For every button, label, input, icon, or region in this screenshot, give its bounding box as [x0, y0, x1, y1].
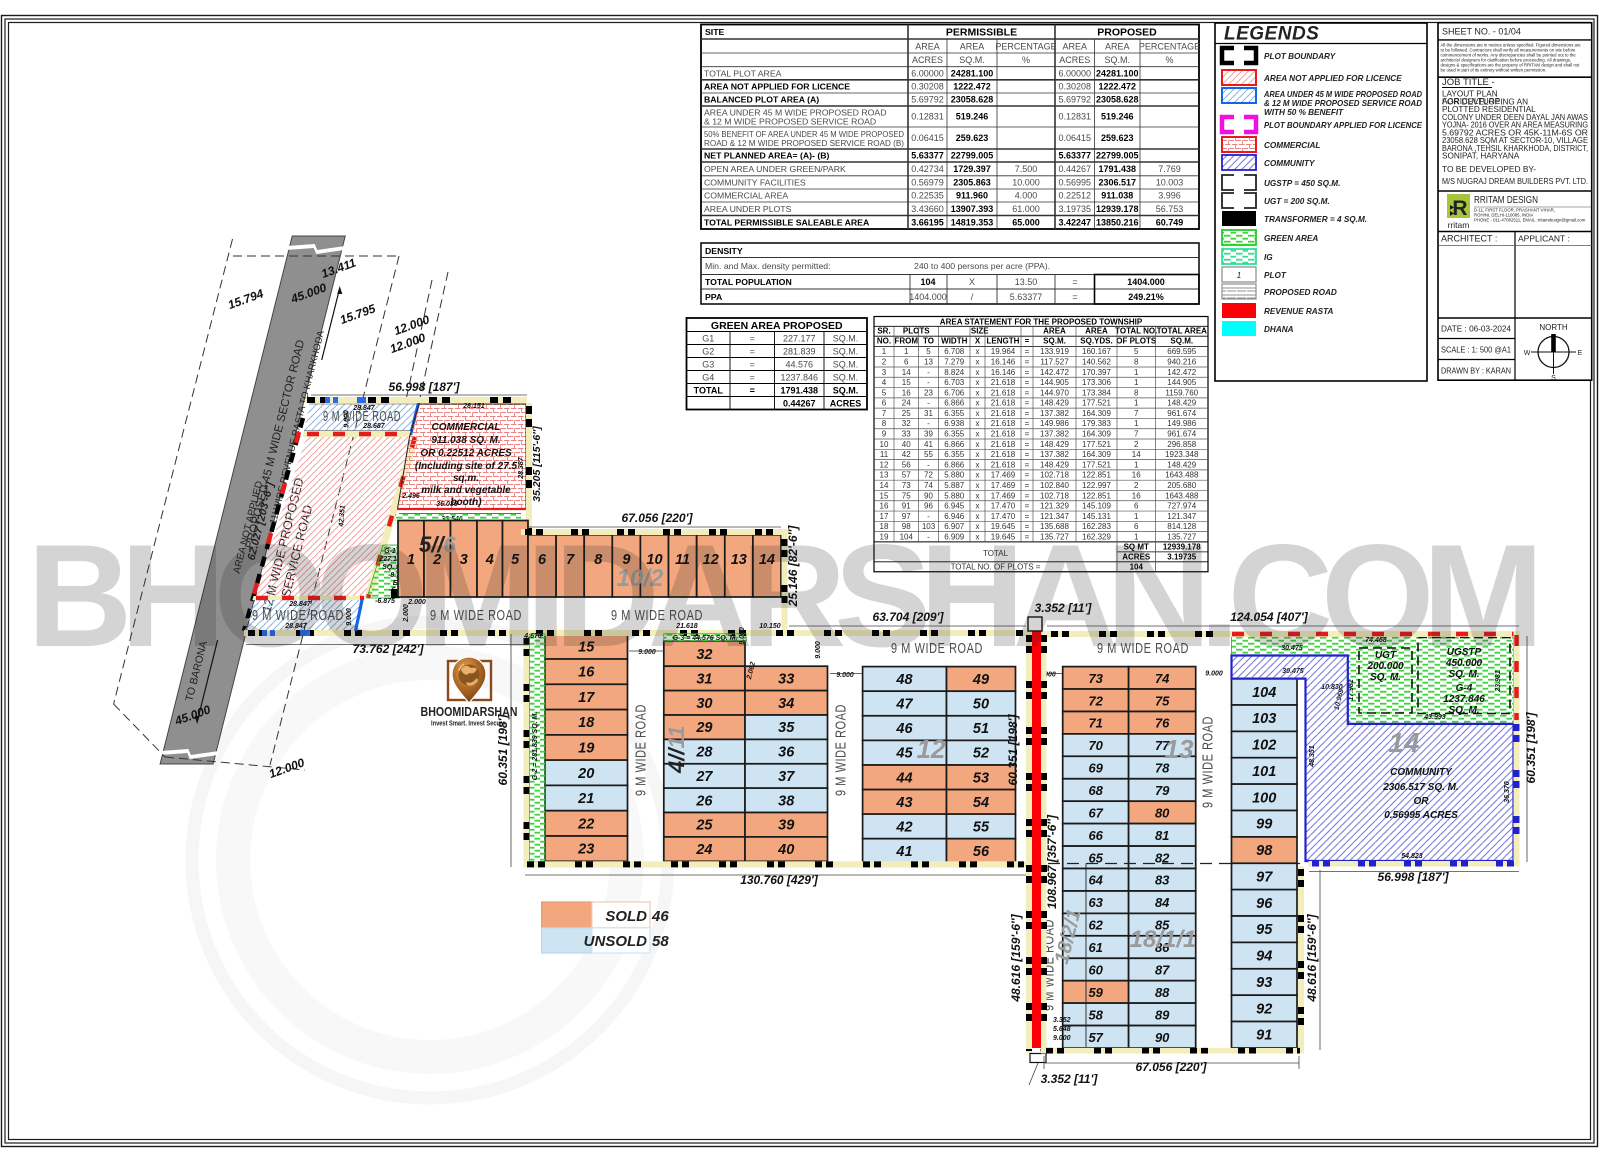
svg-text:1791.438: 1791.438: [780, 386, 818, 396]
svg-text:& 12 M WIDE PROPOSED SERVICE R: & 12 M WIDE PROPOSED SERVICE ROAD: [1264, 99, 1422, 108]
svg-text:259.623: 259.623: [1101, 133, 1134, 143]
svg-text:27: 27: [695, 769, 713, 785]
svg-text:24: 24: [695, 842, 712, 858]
svg-text:4//11: 4//11: [664, 726, 689, 774]
svg-text:TO: TO: [923, 337, 934, 346]
svg-text:DRAWN BY : KARAN: DRAWN BY : KARAN: [1441, 366, 1511, 376]
svg-text:16: 16: [1132, 491, 1141, 500]
svg-text:SONIPAT, HARYANA: SONIPAT, HARYANA: [1442, 152, 1520, 161]
svg-text:GREEN AREA PROPOSED: GREEN AREA PROPOSED: [711, 320, 843, 332]
svg-text:=: =: [1025, 337, 1030, 346]
svg-text:x: x: [976, 388, 980, 397]
svg-text:2.496: 2.496: [401, 493, 420, 500]
svg-text:18: 18: [578, 715, 595, 731]
svg-text:x: x: [976, 409, 980, 418]
svg-text:97: 97: [1256, 870, 1273, 886]
svg-text:173.384: 173.384: [1082, 388, 1111, 397]
svg-text:R: R: [1452, 197, 1467, 220]
svg-text:14: 14: [1132, 450, 1141, 459]
svg-text:PLOT BOUNDARY: PLOT BOUNDARY: [1264, 52, 1337, 61]
svg-text:1: 1: [1134, 460, 1139, 469]
svg-text:x: x: [976, 481, 980, 490]
svg-text:6.866: 6.866: [944, 460, 965, 469]
svg-text:12: 12: [917, 734, 946, 764]
svg-text:-: -: [927, 460, 930, 469]
svg-text:20: 20: [577, 766, 594, 782]
svg-text:6.00000: 6.00000: [1058, 68, 1091, 78]
svg-text:68: 68: [1088, 783, 1103, 798]
svg-text:BHOOMIDARSHAN.COM: BHOOMIDARSHAN.COM: [27, 514, 1544, 677]
svg-text:21.618: 21.618: [991, 440, 1016, 449]
svg-text:1404.000: 1404.000: [1127, 277, 1165, 287]
svg-text:16: 16: [1132, 471, 1141, 480]
svg-text:144.905: 144.905: [1167, 378, 1196, 387]
svg-text:(Including site of 27.5: (Including site of 27.5: [415, 461, 518, 472]
svg-text:21.618: 21.618: [991, 460, 1016, 469]
svg-text:148.429: 148.429: [1040, 399, 1069, 408]
svg-text:5.648: 5.648: [1053, 1026, 1071, 1033]
svg-text:0.56995 ACRES: 0.56995 ACRES: [1384, 810, 1458, 821]
svg-text:9 M WIDE ROAD: 9 M WIDE ROAD: [633, 704, 650, 796]
svg-text:AREA: AREA: [1043, 326, 1066, 335]
svg-text:21.618: 21.618: [991, 419, 1016, 428]
svg-text:17.981: 17.981: [1348, 679, 1355, 701]
svg-text:RRITAM DESIGN: RRITAM DESIGN: [1474, 195, 1538, 206]
svg-text:1237.846: 1237.846: [780, 373, 818, 383]
svg-text:164.309: 164.309: [1082, 430, 1111, 439]
svg-text:TOTAL NO.: TOTAL NO.: [1115, 326, 1157, 335]
svg-text:1: 1: [882, 347, 887, 356]
svg-text:122.851: 122.851: [1082, 471, 1111, 480]
svg-text:G-2 = 281.839 SQ. M.: G-2 = 281.839 SQ. M.: [532, 712, 539, 781]
svg-text:93: 93: [1256, 975, 1272, 991]
svg-text:=: =: [1025, 388, 1030, 397]
svg-text:1: 1: [1134, 378, 1139, 387]
svg-text:121.329: 121.329: [1040, 502, 1069, 511]
svg-text:AREA STATEMENT FOR THE PROPOSE: AREA STATEMENT FOR THE PROPOSED TOWNSHIP: [940, 317, 1143, 326]
svg-text:24: 24: [902, 399, 911, 408]
svg-text:PPA: PPA: [705, 292, 723, 302]
svg-text:259.623: 259.623: [956, 133, 989, 143]
svg-text:23: 23: [924, 388, 933, 397]
svg-text:51: 51: [973, 721, 989, 737]
svg-text:sq.m.: sq.m.: [453, 473, 479, 484]
svg-text:PLOT: PLOT: [1264, 271, 1287, 280]
svg-text:3: 3: [882, 368, 887, 377]
svg-text:SQ.M.: SQ.M.: [833, 386, 859, 396]
svg-text:102.718: 102.718: [1040, 471, 1069, 480]
svg-text:6: 6: [904, 357, 909, 366]
svg-text:=: =: [1025, 419, 1030, 428]
svg-text:10.000: 10.000: [1012, 177, 1040, 187]
svg-text:X: X: [975, 337, 981, 346]
svg-text:ARCHITECT :: ARCHITECT :: [1441, 234, 1497, 244]
svg-text:28.387: 28.387: [518, 456, 525, 480]
svg-text:G2: G2: [702, 347, 714, 357]
svg-text:& 12 M WIDE PROPOSED SERVICE R: & 12 M WIDE PROPOSED SERVICE ROAD: [704, 116, 876, 126]
svg-text:6.945: 6.945: [944, 502, 965, 511]
svg-text:SOLD: SOLD: [605, 908, 647, 925]
svg-text:37: 37: [778, 769, 795, 785]
svg-text:x: x: [976, 471, 980, 480]
svg-text:18/1/1: 18/1/1: [1130, 926, 1197, 953]
svg-text:148.429: 148.429: [1167, 460, 1196, 469]
svg-text:1222.472: 1222.472: [953, 81, 991, 91]
svg-text:8: 8: [1134, 388, 1139, 397]
svg-text:5.887: 5.887: [944, 481, 965, 490]
svg-text:28: 28: [695, 745, 713, 761]
svg-text:67: 67: [1088, 805, 1103, 820]
svg-text:148.429: 148.429: [1040, 440, 1069, 449]
svg-text:669.595: 669.595: [1167, 347, 1196, 356]
svg-text:122.851: 122.851: [1082, 491, 1111, 500]
svg-text:32: 32: [902, 419, 911, 428]
svg-text:=: =: [1025, 347, 1030, 356]
svg-text:0.56995: 0.56995: [1058, 177, 1091, 187]
svg-text:63: 63: [1088, 895, 1103, 910]
svg-text:16: 16: [880, 502, 889, 511]
svg-text:108.967 [357'-6″]: 108.967 [357'-6″]: [1045, 814, 1059, 909]
svg-text:12: 12: [880, 460, 889, 469]
svg-text:1643.488: 1643.488: [1165, 471, 1199, 480]
svg-text:56.998 [187']: 56.998 [187']: [389, 380, 461, 394]
svg-text:1791.438: 1791.438: [1098, 164, 1136, 174]
svg-text:5.69792: 5.69792: [1058, 95, 1091, 105]
svg-text:13850.216: 13850.216: [1096, 217, 1139, 227]
svg-text:45: 45: [895, 746, 913, 762]
svg-text:65.000: 65.000: [1012, 217, 1040, 227]
svg-text:AREA UNDER PLOTS: AREA UNDER PLOTS: [704, 204, 792, 214]
svg-text:X: X: [969, 277, 975, 287]
svg-text:80: 80: [1155, 805, 1170, 820]
svg-text:75: 75: [1155, 693, 1170, 708]
svg-text:8: 8: [1134, 357, 1139, 366]
svg-text:PERCENTAGE: PERCENTAGE: [1139, 42, 1200, 52]
svg-text:5.880: 5.880: [944, 491, 965, 500]
svg-text:177.521: 177.521: [1082, 399, 1111, 408]
svg-text:12939.178: 12939.178: [1096, 204, 1139, 214]
svg-text:911.038 SQ. M.: 911.038 SQ. M.: [431, 435, 500, 446]
svg-text:67.056 [220']: 67.056 [220']: [1136, 1060, 1208, 1074]
svg-text:9: 9: [882, 430, 887, 439]
svg-text:64: 64: [1088, 873, 1103, 888]
svg-text:90: 90: [924, 491, 933, 500]
svg-text:=: =: [1025, 471, 1030, 480]
svg-text:102.840: 102.840: [1040, 481, 1069, 490]
svg-text:11: 11: [880, 450, 889, 459]
svg-text:14: 14: [880, 481, 889, 490]
svg-text:OR 0.22512 ACRES: OR 0.22512 ACRES: [420, 448, 512, 459]
svg-text:7: 7: [1134, 430, 1139, 439]
svg-text:SHEET NO. - 01/04: SHEET NO. - 01/04: [1442, 27, 1521, 37]
svg-text:G4: G4: [702, 373, 714, 383]
svg-text:281.839: 281.839: [783, 347, 816, 357]
svg-text:PERCENTAGE: PERCENTAGE: [995, 42, 1056, 52]
svg-text:NET PLANNED AREA= (A)- (B): NET PLANNED AREA= (A)- (B): [704, 151, 830, 161]
svg-text:55: 55: [973, 819, 990, 835]
svg-text:1: 1: [1134, 399, 1139, 408]
svg-text:44.576: 44.576: [785, 360, 813, 370]
svg-text:6.938: 6.938: [944, 419, 965, 428]
svg-text:90: 90: [1155, 1030, 1170, 1045]
svg-text:x: x: [976, 347, 980, 356]
svg-text:72: 72: [1088, 693, 1103, 708]
svg-text:7.769: 7.769: [1158, 164, 1181, 174]
svg-text:137.382: 137.382: [1040, 409, 1069, 418]
svg-text:3.42247: 3.42247: [1058, 217, 1091, 227]
svg-text:102.718: 102.718: [1040, 491, 1069, 500]
svg-text:-: -: [927, 378, 930, 387]
svg-text:26: 26: [695, 793, 713, 809]
svg-text:91: 91: [1256, 1028, 1272, 1044]
svg-text:99: 99: [1256, 817, 1272, 833]
svg-text:SQ.M.: SQ.M.: [833, 360, 859, 370]
svg-text:NORTH: NORTH: [1539, 323, 1568, 332]
svg-text:40: 40: [777, 842, 794, 858]
svg-text:22: 22: [577, 816, 594, 832]
svg-text:3.352: 3.352: [1053, 1017, 1071, 1024]
svg-text:42: 42: [895, 819, 912, 835]
svg-text:911.038: 911.038: [1101, 191, 1133, 201]
svg-text:AREA: AREA: [1062, 42, 1087, 52]
svg-text:25: 25: [695, 818, 713, 834]
svg-text:=: =: [1025, 450, 1030, 459]
svg-text:21.618: 21.618: [991, 409, 1016, 418]
svg-text:21: 21: [577, 791, 594, 807]
svg-text:TO BE DEVELOPED BY-: TO BE DEVELOPED BY-: [1442, 164, 1536, 174]
svg-text:x: x: [976, 450, 980, 459]
svg-text:30: 30: [696, 696, 712, 712]
svg-text:Invest Smart. Invest Secure.: Invest Smart. Invest Secure.: [431, 719, 507, 728]
svg-text:46: 46: [651, 908, 669, 925]
svg-text:50: 50: [973, 697, 989, 713]
svg-text:160.167: 160.167: [1082, 347, 1111, 356]
svg-text:59: 59: [1088, 985, 1103, 1000]
svg-text:101: 101: [1252, 764, 1276, 780]
svg-text:2305.863: 2305.863: [953, 177, 991, 187]
svg-text:0.06415: 0.06415: [1058, 133, 1091, 143]
svg-text:=: =: [1025, 502, 1030, 511]
svg-text:x: x: [976, 430, 980, 439]
svg-text:G3: G3: [702, 360, 714, 370]
svg-text:57: 57: [902, 471, 911, 480]
svg-text:COMMUNITY: COMMUNITY: [1264, 159, 1316, 168]
svg-text:17: 17: [578, 690, 595, 706]
svg-text:7: 7: [1134, 409, 1139, 418]
svg-text:BHOOMIDARSHAN: BHOOMIDARSHAN: [421, 704, 518, 719]
svg-text:=: =: [1025, 440, 1030, 449]
svg-text:16.146: 16.146: [991, 368, 1016, 377]
svg-text:ACRES: ACRES: [912, 55, 943, 65]
svg-text:92: 92: [1256, 1001, 1272, 1017]
svg-text:4: 4: [882, 378, 887, 387]
svg-text:PLOTS: PLOTS: [903, 326, 930, 335]
svg-text:56.998 [187']: 56.998 [187']: [1378, 870, 1450, 884]
svg-text:6.355: 6.355: [944, 409, 965, 418]
svg-text:33: 33: [902, 430, 911, 439]
svg-text:39: 39: [924, 430, 933, 439]
svg-text:=: =: [1025, 409, 1030, 418]
svg-text:100: 100: [1252, 790, 1276, 806]
svg-text:x: x: [976, 502, 980, 511]
svg-text:PHONE - 011-47082511, EMAIL :r: PHONE - 011-47082511, EMAIL :rritamdesig…: [1474, 218, 1586, 223]
svg-text:35: 35: [778, 720, 795, 736]
svg-text:179.383: 179.383: [1082, 419, 1111, 428]
svg-text:961.674: 961.674: [1167, 430, 1196, 439]
svg-text:21.618: 21.618: [991, 430, 1016, 439]
svg-text:70: 70: [1088, 738, 1103, 753]
svg-text:17.469: 17.469: [991, 471, 1016, 480]
svg-text:240 to 400 persons per acre (P: 240 to 400 persons per acre (PPA).: [914, 261, 1050, 271]
svg-text:%: %: [1165, 55, 1173, 65]
svg-text:E: E: [1578, 350, 1583, 357]
svg-text:148.429: 148.429: [1040, 460, 1069, 469]
svg-text:96: 96: [924, 502, 933, 511]
svg-text:G1: G1: [702, 334, 714, 344]
svg-text:0.42734: 0.42734: [911, 164, 944, 174]
svg-text:9 M WIDE ROAD: 9 M WIDE ROAD: [833, 704, 850, 796]
svg-text:61: 61: [1088, 940, 1102, 955]
svg-text:56: 56: [973, 844, 990, 860]
svg-text:SQ.M.: SQ.M.: [959, 55, 985, 65]
svg-text:8.824: 8.824: [944, 368, 965, 377]
svg-text:911.960: 911.960: [956, 191, 988, 201]
svg-text:148.429: 148.429: [1167, 399, 1196, 408]
svg-text:130.760 [429']: 130.760 [429']: [740, 873, 819, 887]
svg-text:W: W: [1524, 350, 1531, 357]
svg-text:88: 88: [1155, 985, 1170, 1000]
svg-text:39: 39: [778, 818, 794, 834]
svg-text:102: 102: [1252, 738, 1276, 754]
svg-text:164.309: 164.309: [1082, 450, 1111, 459]
svg-text:98: 98: [1256, 843, 1273, 859]
svg-text:60.351 [198']: 60.351 [198']: [1524, 712, 1538, 784]
svg-text:205.680: 205.680: [1167, 481, 1196, 490]
svg-text:=: =: [1072, 292, 1077, 302]
svg-text:M/S NUGRAJ DREAM BUILDERS PVT.: M/S NUGRAJ DREAM BUILDERS PVT. LTD.: [1442, 176, 1588, 186]
svg-text:42: 42: [902, 450, 911, 459]
svg-text:ACRES: ACRES: [830, 399, 862, 409]
svg-text:1: 1: [1134, 419, 1139, 428]
svg-text:6.706: 6.706: [944, 388, 965, 397]
svg-text:1159.760: 1159.760: [1165, 388, 1198, 397]
svg-text:6.355: 6.355: [944, 430, 965, 439]
svg-text:COMMUNITY: COMMUNITY: [1390, 767, 1453, 778]
svg-text:JOB TITLE -: JOB TITLE -: [1442, 77, 1495, 88]
svg-text:71: 71: [1088, 716, 1102, 731]
svg-text:1404.000: 1404.000: [909, 292, 947, 302]
svg-text:LENGTH: LENGTH: [987, 337, 1020, 346]
svg-text:13: 13: [924, 357, 933, 366]
svg-text:2: 2: [882, 357, 887, 366]
svg-text:=: =: [750, 334, 755, 344]
svg-text:52: 52: [973, 746, 989, 762]
svg-text:DHANA: DHANA: [1264, 325, 1294, 334]
svg-text:56.753: 56.753: [1156, 204, 1184, 214]
svg-text:122.997: 122.997: [1082, 481, 1111, 490]
svg-text:0.30208: 0.30208: [911, 81, 944, 91]
svg-text:83: 83: [1155, 873, 1170, 888]
svg-text:SQ.M.: SQ.M.: [833, 334, 859, 344]
svg-text:-: -: [927, 399, 930, 408]
svg-text:9.000: 9.000: [1053, 1035, 1071, 1042]
svg-text:G-4: G-4: [1456, 683, 1473, 694]
svg-text:8: 8: [882, 419, 887, 428]
svg-text:PROPOSED: PROPOSED: [1097, 27, 1157, 39]
svg-text:AREA: AREA: [1105, 42, 1130, 52]
svg-text:145.109: 145.109: [1082, 502, 1111, 511]
svg-text:3.352 [11']: 3.352 [11']: [1041, 1072, 1099, 1086]
svg-text:519.246: 519.246: [1101, 112, 1134, 122]
svg-text:36: 36: [778, 745, 795, 761]
svg-text:79: 79: [1155, 783, 1170, 798]
svg-text:SQ.M.: SQ.M.: [833, 373, 859, 383]
svg-text:6: 6: [882, 399, 887, 408]
svg-text:5.880: 5.880: [944, 471, 965, 480]
svg-text:170.397: 170.397: [1082, 368, 1111, 377]
svg-text:16.146: 16.146: [991, 357, 1016, 366]
svg-text:227.177: 227.177: [783, 334, 816, 344]
svg-text:COMMUNITY FACILITIES: COMMUNITY FACILITIES: [704, 177, 806, 187]
svg-text:76: 76: [1155, 716, 1170, 731]
svg-text:be used in part of its entiret: be used in part of its entirety without …: [1441, 68, 1547, 73]
svg-text:1: 1: [1134, 368, 1139, 377]
svg-text:48.616 [159'-6″]: 48.616 [159'-6″]: [1009, 913, 1023, 1002]
svg-text:296.858: 296.858: [1167, 440, 1196, 449]
svg-text:43.993: 43.993: [1423, 714, 1446, 721]
svg-text:TOTAL AREA: TOTAL AREA: [1157, 326, 1208, 335]
svg-text:29: 29: [695, 720, 712, 736]
svg-text:SR.: SR.: [877, 326, 890, 335]
svg-text:28.151: 28.151: [462, 403, 485, 410]
svg-text:6.00000: 6.00000: [911, 68, 944, 78]
svg-text:IG: IG: [1264, 253, 1273, 262]
svg-text:95: 95: [1256, 922, 1273, 938]
svg-text:24281.100: 24281.100: [951, 68, 994, 78]
svg-text:40: 40: [902, 440, 911, 449]
svg-text:ACRES: ACRES: [1059, 55, 1090, 65]
svg-text:17.469: 17.469: [991, 491, 1016, 500]
svg-text:13: 13: [1165, 734, 1194, 764]
svg-text:5: 5: [882, 388, 887, 397]
svg-text:0.56979: 0.56979: [911, 177, 944, 187]
svg-text:54.823: 54.823: [1401, 853, 1423, 860]
svg-text:14819.353: 14819.353: [951, 217, 994, 227]
svg-text:21.618: 21.618: [991, 378, 1016, 387]
svg-text:28.847: 28.847: [352, 405, 376, 412]
svg-text:14: 14: [1388, 727, 1420, 758]
svg-text:REVENUE RASTA: REVENUE RASTA: [1264, 307, 1334, 316]
svg-text:940.216: 940.216: [1167, 357, 1196, 366]
svg-text:3.43660: 3.43660: [911, 204, 944, 214]
svg-text:1643.488: 1643.488: [1165, 491, 1199, 500]
svg-text:SITE: SITE: [705, 27, 725, 37]
svg-text:91: 91: [902, 502, 911, 511]
svg-text:9 M WIDE ROAD: 9 M WIDE ROAD: [1200, 716, 1217, 808]
svg-text:58: 58: [652, 933, 669, 950]
svg-text:1729.397: 1729.397: [953, 164, 991, 174]
svg-text:7.500: 7.500: [1015, 164, 1038, 174]
svg-text:13.50: 13.50: [1015, 277, 1038, 287]
svg-text:41: 41: [924, 440, 933, 449]
svg-text:53: 53: [973, 770, 989, 786]
svg-text:2306.517 SQ. M.: 2306.517 SQ. M.: [1382, 782, 1459, 793]
svg-text:94: 94: [1256, 949, 1272, 965]
svg-text:=: =: [1025, 481, 1030, 490]
svg-text:249.21%: 249.21%: [1128, 292, 1164, 302]
svg-text:AREA NOT APPLIED FOR LICENCE: AREA NOT APPLIED FOR LICENCE: [1263, 74, 1402, 83]
svg-text:1: 1: [1237, 271, 1241, 280]
